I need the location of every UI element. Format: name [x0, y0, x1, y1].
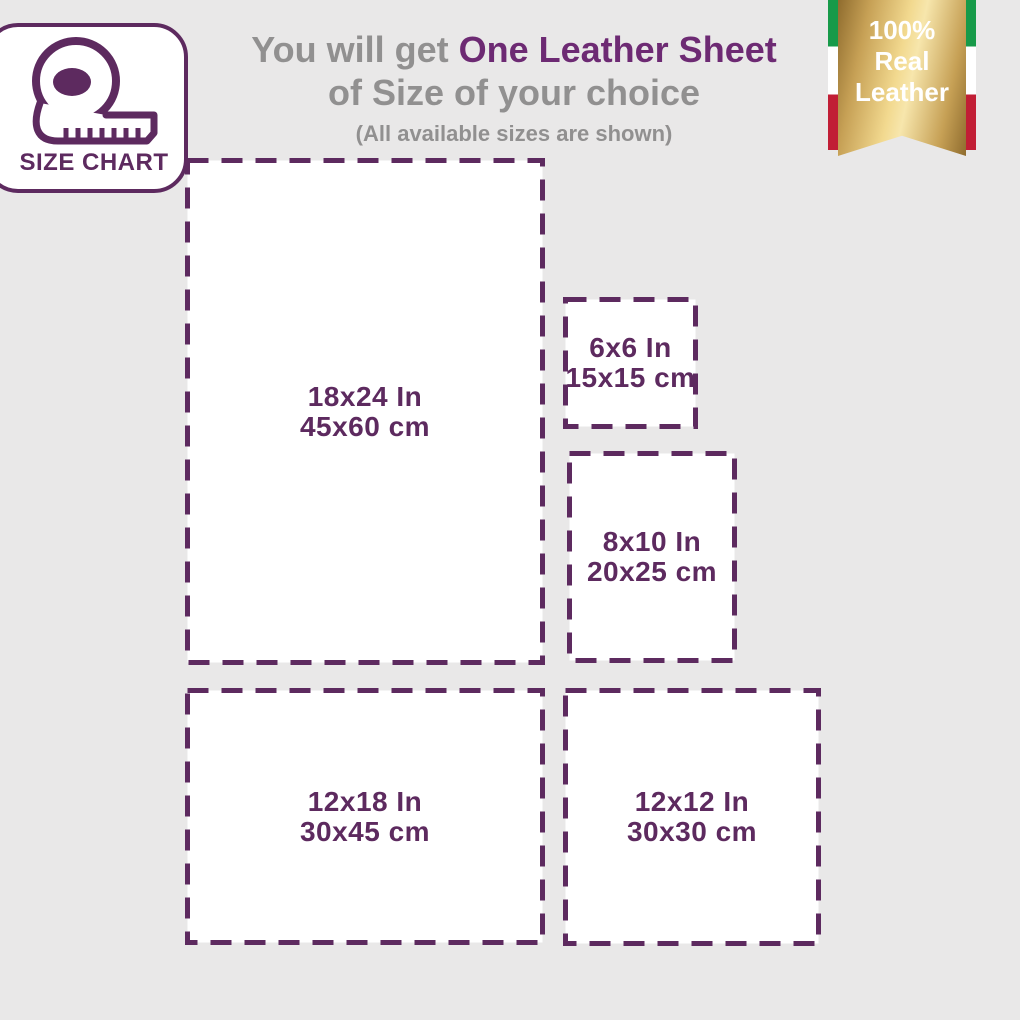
headline-prefix: You will get: [251, 29, 458, 70]
size-label: 8x10 In 20x25 cm: [567, 451, 737, 663]
size-box-18x24: 18x24 In 45x60 cm: [185, 158, 545, 665]
headline-note: (All available sizes are shown): [200, 121, 828, 147]
size-cm: 30x30 cm: [627, 817, 757, 847]
headline-line-1: You will get One Leather Sheet: [200, 28, 828, 71]
size-chart-card-label: SIZE CHART: [4, 149, 184, 177]
headline: You will get One Leather Sheet of Size o…: [200, 28, 828, 147]
size-inches: 18x24 In: [308, 382, 423, 412]
italian-flag-stripe-left: [828, 0, 838, 150]
size-inches: 12x12 In: [635, 787, 750, 817]
size-inches: 8x10 In: [603, 527, 701, 557]
badge-line-3: Leather: [855, 77, 949, 108]
size-cm: 30x45 cm: [300, 817, 430, 847]
size-cm: 45x60 cm: [300, 412, 430, 442]
headline-line-2: of Size of your choice: [200, 71, 828, 114]
gold-ribbon: 100% Real Leather: [838, 0, 966, 156]
headline-highlight: One Leather Sheet: [459, 29, 777, 70]
size-inches: 6x6 In: [589, 333, 671, 363]
real-leather-ribbon-badge: 100% Real Leather: [828, 0, 976, 158]
size-cm: 15x15 cm: [565, 363, 695, 393]
size-box-8x10: 8x10 In 20x25 cm: [567, 451, 737, 663]
size-label: 12x12 In 30x30 cm: [563, 688, 821, 946]
badge-line-1: 100%: [869, 15, 936, 46]
measuring-tape-icon: [0, 27, 192, 167]
size-chart-card: SIZE CHART: [0, 23, 188, 193]
size-inches: 12x18 In: [308, 787, 423, 817]
size-box-12x18: 12x18 In 30x45 cm: [185, 688, 545, 945]
italian-flag-stripe-right: [966, 0, 976, 150]
badge-line-2: Real: [875, 46, 930, 77]
size-cm: 20x25 cm: [587, 557, 717, 587]
size-box-12x12: 12x12 In 30x30 cm: [563, 688, 821, 946]
size-label: 6x6 In 15x15 cm: [563, 297, 698, 429]
size-chart-infographic: 18x24 In 45x60 cm 6x6 In 15x15 cm 8x10 I…: [0, 0, 1020, 1020]
size-label: 12x18 In 30x45 cm: [185, 688, 545, 945]
size-box-6x6: 6x6 In 15x15 cm: [563, 297, 698, 429]
size-label: 18x24 In 45x60 cm: [185, 158, 545, 665]
